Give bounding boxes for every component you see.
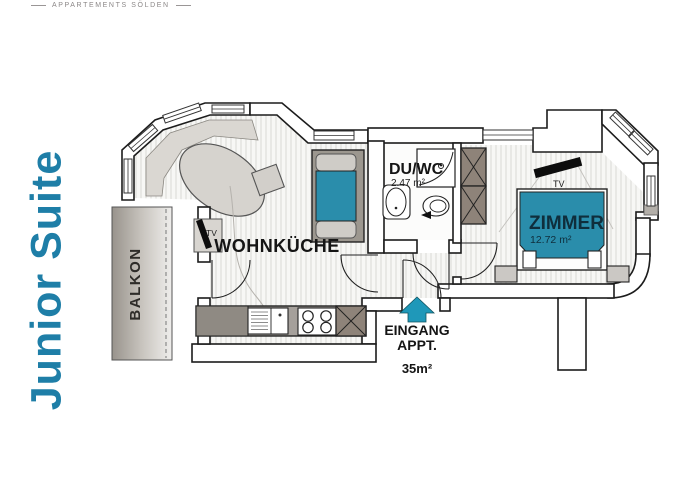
brand-logo-text: APPARTEMENTS SÖLDEN bbox=[52, 2, 170, 9]
logo-rule-right bbox=[176, 5, 191, 6]
balcony: BALKON bbox=[112, 207, 172, 360]
total-area-label: 35m² bbox=[402, 361, 433, 376]
fridge-unit bbox=[336, 306, 366, 336]
sofa-daybed bbox=[312, 150, 364, 242]
zimmer-area: 12.72 m² bbox=[530, 234, 572, 246]
kitchen-sink bbox=[248, 308, 288, 334]
entrance-line2: APPT. bbox=[397, 337, 437, 353]
logo-rule-left bbox=[31, 5, 46, 6]
wohnkueche-label: WOHNKÜCHE bbox=[214, 236, 340, 256]
suite-title: Junior Suite bbox=[23, 150, 72, 410]
double-bed: ZIMMER 12.72 m² bbox=[517, 189, 607, 270]
entrance-line1: EINGANG bbox=[384, 322, 449, 338]
duwc-area: 2.47 m² bbox=[391, 178, 426, 189]
washbasin bbox=[383, 185, 410, 219]
duwc-label: DU/WC bbox=[389, 161, 444, 178]
wardrobe bbox=[461, 148, 486, 224]
brand-logo: APPARTEMENTS SÖLDEN bbox=[31, 2, 191, 9]
zimmer-label: ZIMMER bbox=[529, 213, 604, 234]
kitchen-block bbox=[196, 306, 366, 336]
floorplan-svg: BALKON bbox=[0, 0, 700, 500]
floorplan-page: APPARTEMENTS SÖLDEN Junior Suite BALKON bbox=[0, 0, 700, 500]
tv-bedroom-label: TV bbox=[553, 179, 565, 189]
stove bbox=[298, 308, 336, 335]
balcony-label: BALKON bbox=[127, 247, 144, 320]
entrance-arrow-icon bbox=[400, 297, 434, 322]
